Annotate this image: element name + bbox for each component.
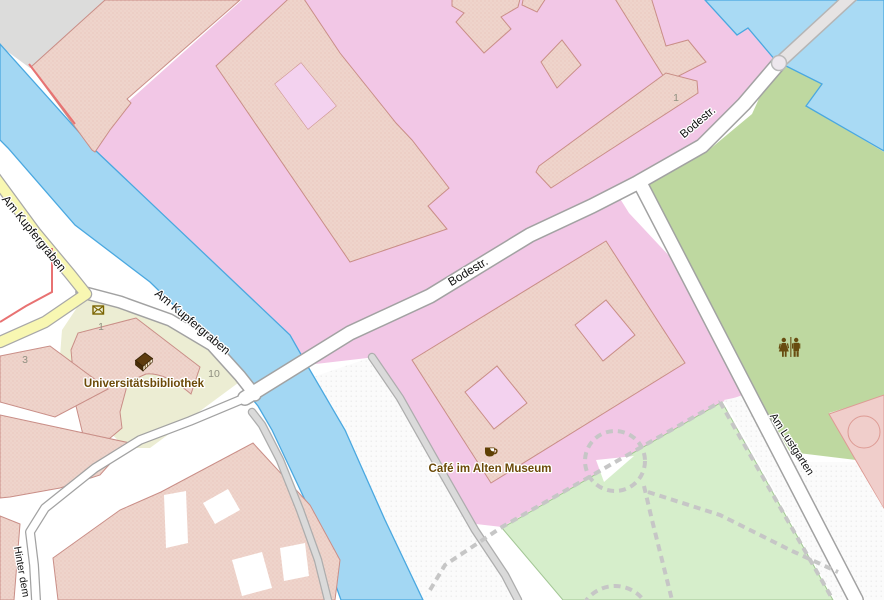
svg-text:Café im Alten Museum: Café im Alten Museum xyxy=(429,463,552,475)
svg-text:Universitätsbibliothek: Universitätsbibliothek xyxy=(84,378,205,390)
svg-text:3: 3 xyxy=(22,354,28,366)
svg-text:1: 1 xyxy=(98,321,104,333)
svg-text:1: 1 xyxy=(673,92,679,104)
svg-text:10: 10 xyxy=(208,368,220,380)
